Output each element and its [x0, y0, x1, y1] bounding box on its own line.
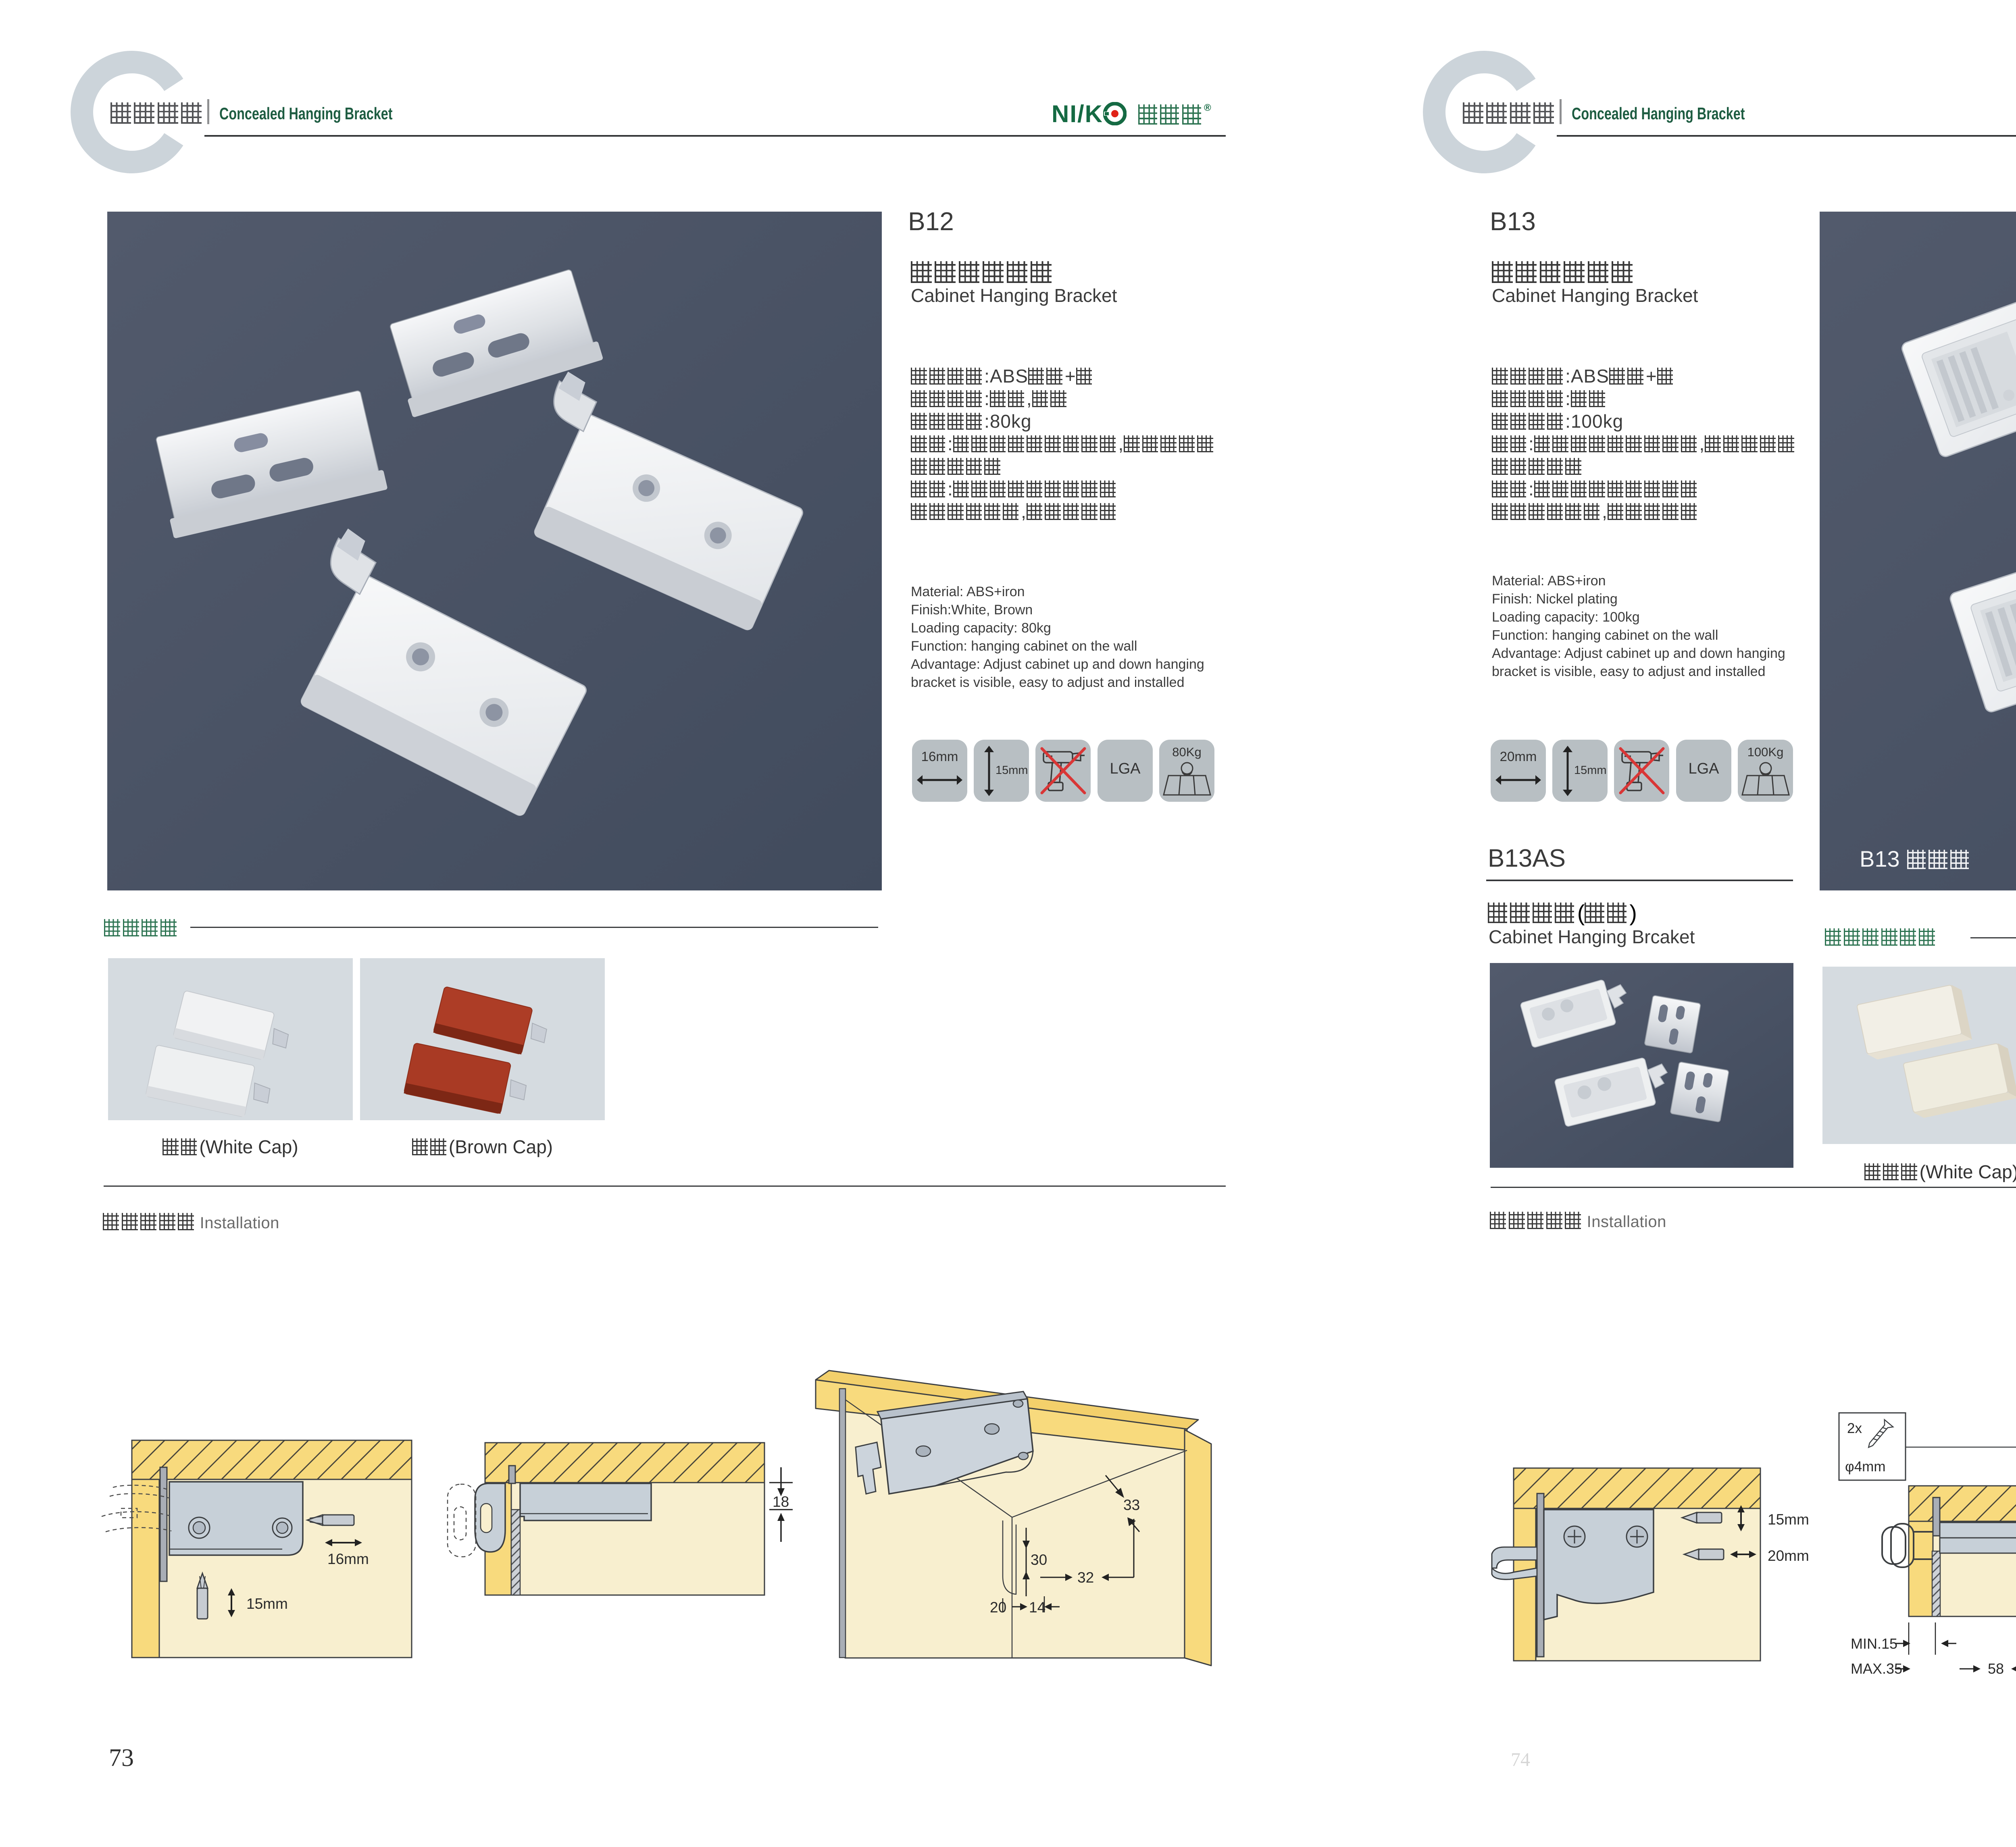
svg-text:φ4mm: φ4mm	[1845, 1459, 1885, 1475]
svg-text:2x: 2x	[1847, 1421, 1862, 1436]
svg-text:32: 32	[1077, 1569, 1094, 1586]
svg-text:MAX.35: MAX.35	[1851, 1660, 1902, 1677]
svg-text:30: 30	[1031, 1552, 1047, 1568]
svg-text:B13: B13	[1860, 846, 1900, 872]
svg-text:16mm: 16mm	[327, 1551, 369, 1567]
svg-text:14: 14	[1029, 1599, 1045, 1616]
svg-text:20mm: 20mm	[1768, 1547, 1809, 1564]
svg-text:15mm: 15mm	[246, 1595, 288, 1612]
svg-text:33: 33	[1123, 1497, 1140, 1513]
svg-text:15mm: 15mm	[1768, 1511, 1809, 1528]
svg-text:18: 18	[773, 1493, 789, 1510]
svg-text:58: 58	[1988, 1660, 2004, 1677]
svg-text:20: 20	[990, 1599, 1006, 1616]
svg-text:MIN.15: MIN.15	[1851, 1635, 1897, 1652]
